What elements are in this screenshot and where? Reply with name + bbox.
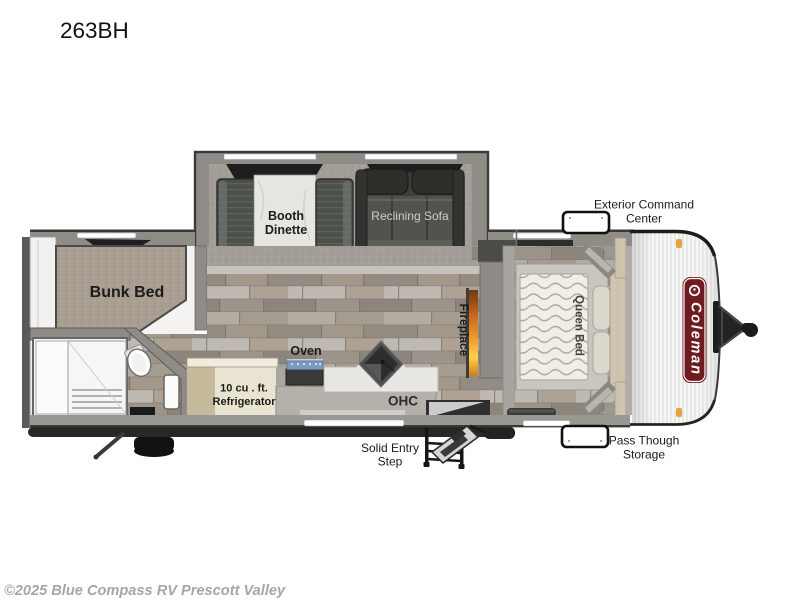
svg-text:Step: Step <box>378 455 403 469</box>
svg-text:Booth: Booth <box>268 209 304 223</box>
svg-text:Refrigerator: Refrigerator <box>213 396 277 408</box>
svg-text:©2025 Blue Compass RV Prescott: ©2025 Blue Compass RV Prescott Valley <box>4 583 286 599</box>
svg-text:Dinette: Dinette <box>265 223 307 237</box>
svg-text:10 cu . ft.: 10 cu . ft. <box>220 383 268 395</box>
svg-text:Solid Entry: Solid Entry <box>361 441 419 455</box>
svg-text:Storage: Storage <box>623 448 665 462</box>
svg-text:Queen Bed: Queen Bed <box>573 295 585 356</box>
svg-text:Exterior Command: Exterior Command <box>594 198 694 212</box>
svg-text:Pass Though: Pass Though <box>609 434 680 448</box>
svg-text:Oven: Oven <box>290 344 321 358</box>
svg-text:263BH: 263BH <box>60 18 129 43</box>
svg-text:Center: Center <box>626 212 662 226</box>
svg-text:OHC: OHC <box>388 394 418 409</box>
svg-text:Reclining Sofa: Reclining Sofa <box>371 209 449 223</box>
svg-text:Fireplace: Fireplace <box>457 304 471 357</box>
svg-text:Bunk Bed: Bunk Bed <box>90 284 165 301</box>
